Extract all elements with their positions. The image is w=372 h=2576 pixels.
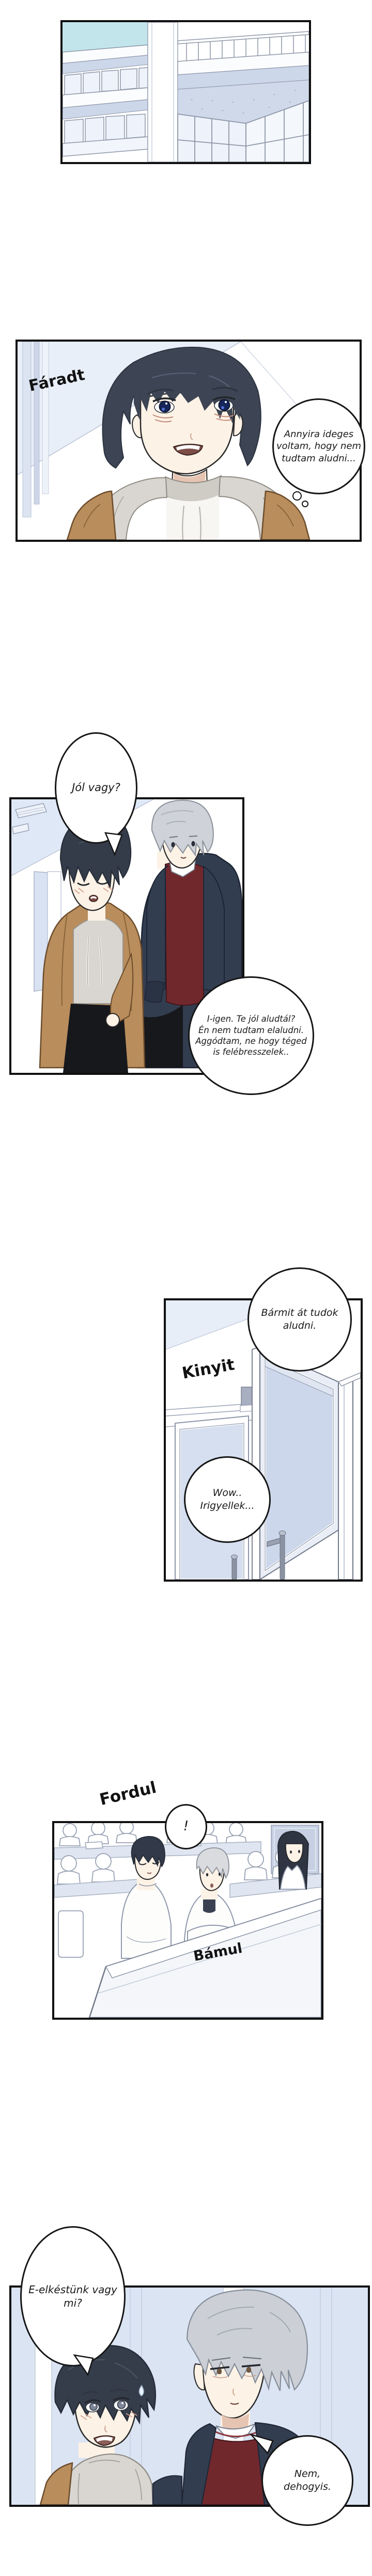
panel-building-exterior: [60, 20, 311, 164]
bubble-elkestunk: E-elkéstünk vagy mi?: [20, 2226, 126, 2366]
bubble-barmit-text: Bármit át tudok aludni.: [261, 1307, 338, 1332]
bubble-elkestunk-tail: [72, 2354, 95, 2376]
bubble-i-igen: I-igen. Te jól aludtál? Én nem tudtam el…: [188, 976, 314, 1095]
bubble-i-igen-text: I-igen. Te jól aludtál? Én nem tudtam el…: [195, 1013, 307, 1058]
bubble-nem-dehogyis: Nem, dehogyis.: [261, 2435, 353, 2526]
building-art: [63, 22, 309, 162]
bubble-wow: Wow.. Irigyellek...: [184, 1456, 271, 1543]
sfx-fordul-text: Fordul: [98, 1778, 158, 1809]
panel-classroom: [52, 1821, 323, 2020]
sfx-fordul: Fordul: [98, 1778, 158, 1809]
bubble-nem-dehogyis-text: Nem, dehogyis.: [284, 2468, 331, 2493]
bubble-jol-vagy-tail: [103, 832, 124, 856]
thought-trail-dot: [292, 491, 302, 501]
bubble-jol-vagy: Jól vagy?: [55, 732, 137, 844]
webtoon-page: Fáradt Annyira ideges voltam, hogy nem t…: [0, 0, 372, 2576]
bubble-jol-vagy-text: Jól vagy?: [72, 781, 120, 795]
bubble-wow-text: Wow.. Irigyellek...: [200, 1487, 254, 1512]
bubble-exclaim-text: !: [183, 1818, 189, 1836]
bubble-nem-tail: [250, 2434, 274, 2454]
bubble-exclaim: !: [165, 1804, 207, 1849]
bubble-elkestunk-text: E-elkéstünk vagy mi?: [28, 2283, 117, 2310]
bubble-thought-nervous-text: Annyira ideges voltam, hogy nem tudtam a…: [276, 428, 361, 464]
thought-trail-dot: [302, 501, 308, 507]
classroom-art: [54, 1823, 321, 2018]
bubble-barmit: Bármit át tudok aludni.: [247, 1267, 352, 1372]
bubble-thought-nervous: Annyira ideges voltam, hogy nem tudtam a…: [272, 398, 365, 494]
